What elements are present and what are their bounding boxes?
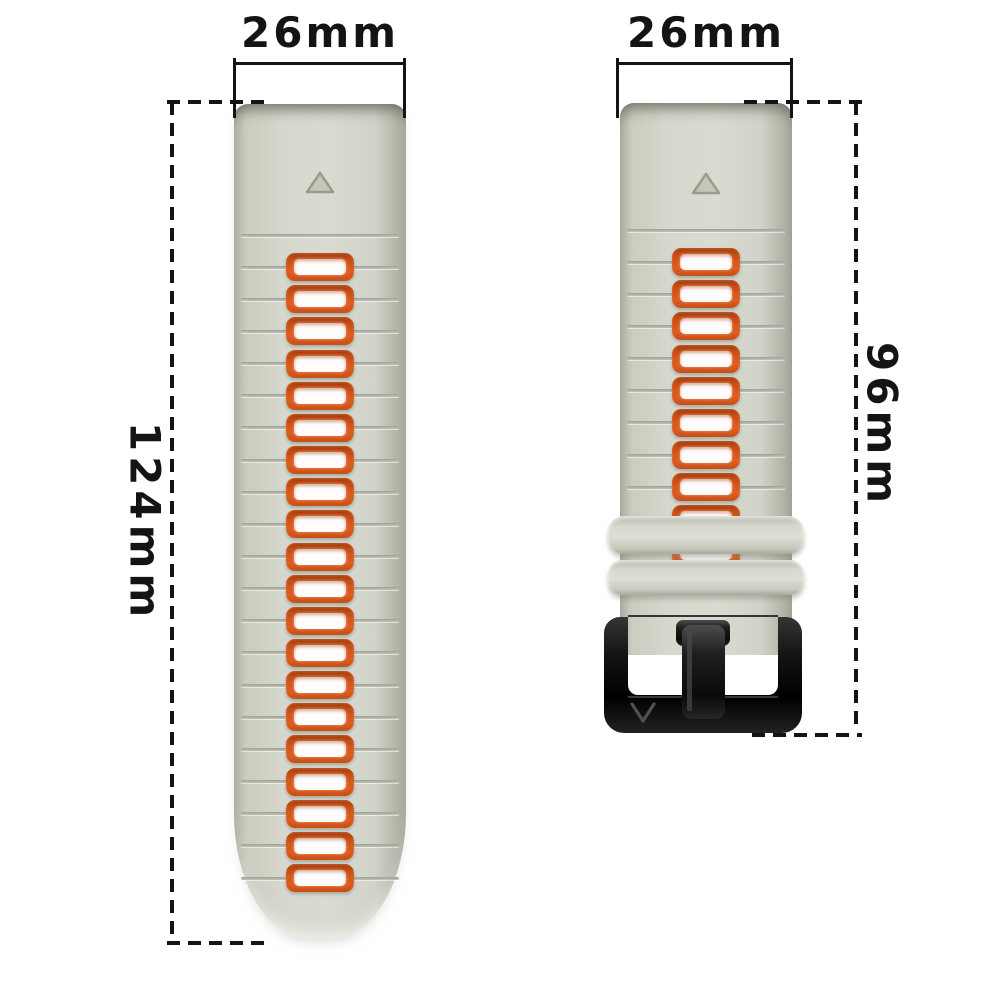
strap-hole-opening <box>294 709 346 725</box>
strap-hole <box>286 703 354 731</box>
dimension-tick <box>403 58 406 118</box>
strap-hole-opening <box>294 420 346 436</box>
strap-hole <box>286 285 354 313</box>
strap-hole-opening <box>294 806 346 822</box>
triangle-marker-icon <box>690 171 722 196</box>
strap-hole <box>286 768 354 796</box>
strap-hole-opening <box>294 741 346 757</box>
left-width-dimension-line <box>234 62 406 65</box>
strap-hole <box>286 832 354 860</box>
buckle <box>602 615 804 735</box>
strap-hole <box>286 607 354 635</box>
strap-hole <box>286 575 354 603</box>
triangle-marker-icon <box>304 170 336 195</box>
strap-hole-opening <box>680 383 732 399</box>
strap-hole-opening <box>294 259 346 275</box>
strap-hole-opening <box>294 516 346 532</box>
right-length-label: 96mm <box>858 342 907 508</box>
strap-hole-opening <box>294 549 346 565</box>
strap-hole <box>286 253 354 281</box>
strap-hole <box>286 350 354 378</box>
strap-hole-opening <box>294 484 346 500</box>
buckle-tongue <box>676 620 730 719</box>
strap-hole-opening <box>294 452 346 468</box>
strap-hole <box>286 671 354 699</box>
strap-hole <box>672 441 740 469</box>
strap-hole-opening <box>294 838 346 854</box>
strap-hole <box>286 446 354 474</box>
dimension-tick <box>233 58 236 118</box>
strap-groove <box>627 229 785 232</box>
strap-hole-opening <box>294 388 346 404</box>
strap-hole <box>672 345 740 373</box>
left-length-label: 124mm <box>121 422 170 622</box>
right-width-label: 26mm <box>620 8 792 57</box>
strap-hole <box>672 280 740 308</box>
strap-hole <box>286 317 354 345</box>
dimension-tick <box>616 58 619 118</box>
strap-hole-opening <box>294 581 346 597</box>
strap-hole <box>286 382 354 410</box>
strap-hole-opening <box>680 447 732 463</box>
strap-hole <box>286 735 354 763</box>
strap-hole <box>286 639 354 667</box>
product-image: 26mm 26mm 124mm 96mm <box>0 0 1000 1000</box>
strap-hole-opening <box>294 774 346 790</box>
strap-hole-opening <box>294 613 346 629</box>
strap-hole-opening <box>680 254 732 270</box>
strap-hole <box>672 377 740 405</box>
extension-line <box>752 733 862 737</box>
strap-hole-opening <box>680 415 732 431</box>
strap-hole-opening <box>294 323 346 339</box>
strap-hole-opening <box>680 479 732 495</box>
extension-line <box>167 100 269 104</box>
strap-hole <box>286 800 354 828</box>
left-width-label: 26mm <box>234 8 406 57</box>
strap-hole-opening <box>294 645 346 661</box>
strap-hole-opening <box>294 677 346 693</box>
strap-hole <box>672 473 740 501</box>
strap-groove <box>241 234 399 237</box>
strap-hole <box>286 478 354 506</box>
strap-hole <box>672 409 740 437</box>
strap-hole <box>286 543 354 571</box>
strap-hole <box>286 414 354 442</box>
long-band <box>234 104 406 938</box>
strap-hole <box>672 312 740 340</box>
keeper-loop-1 <box>608 516 804 554</box>
left-length-extension-line <box>170 102 174 938</box>
dimension-tick <box>790 58 793 118</box>
right-width-dimension-line <box>618 62 793 65</box>
strap-hole-opening <box>680 318 732 334</box>
strap-hole-opening <box>294 356 346 372</box>
strap-hole-opening <box>680 286 732 302</box>
strap-hole <box>286 510 354 538</box>
extension-line <box>744 100 866 104</box>
strap-hole-opening <box>294 291 346 307</box>
strap-hole <box>672 248 740 276</box>
extension-line <box>167 941 269 945</box>
strap-hole <box>286 864 354 892</box>
strap-hole-opening <box>294 870 346 886</box>
keeper-loop-2 <box>608 560 804 595</box>
strap-hole-opening <box>680 351 732 367</box>
